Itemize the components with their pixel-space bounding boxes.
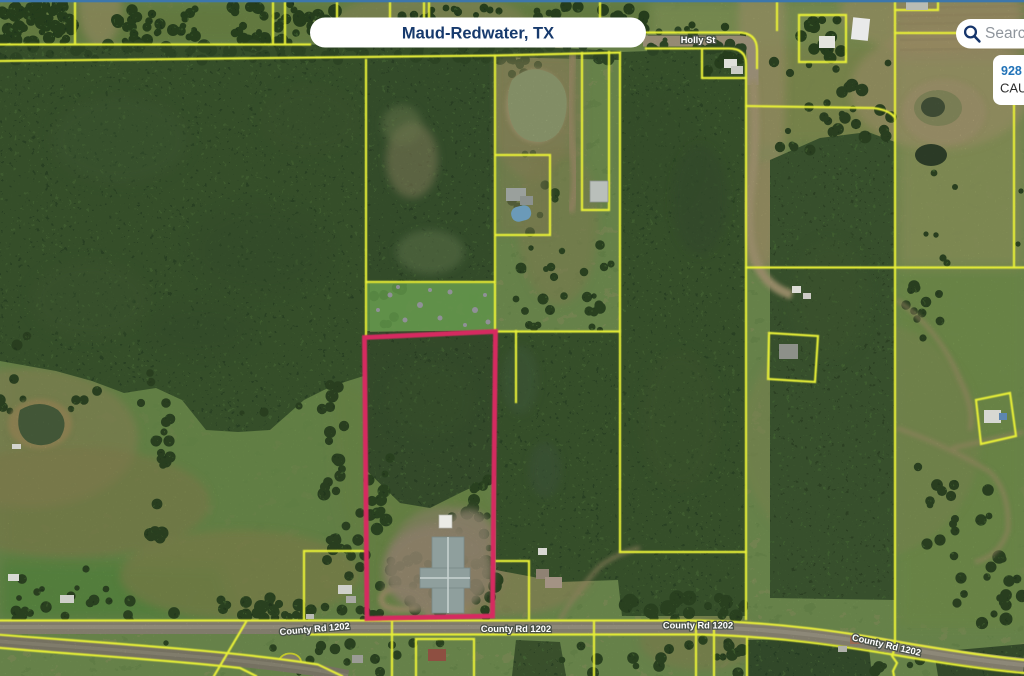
svg-text:Holly St: Holly St	[681, 35, 716, 45]
svg-text:County Rd 1202: County Rd 1202	[663, 621, 733, 631]
svg-text:CAU: CAU	[1000, 81, 1024, 96]
svg-text:County Rd 1202: County Rd 1202	[481, 624, 551, 634]
svg-text:Maud-Redwater, TX: Maud-Redwater, TX	[402, 25, 554, 43]
svg-text:928: 928	[1001, 64, 1022, 78]
svg-text:Search: Search	[985, 25, 1024, 42]
